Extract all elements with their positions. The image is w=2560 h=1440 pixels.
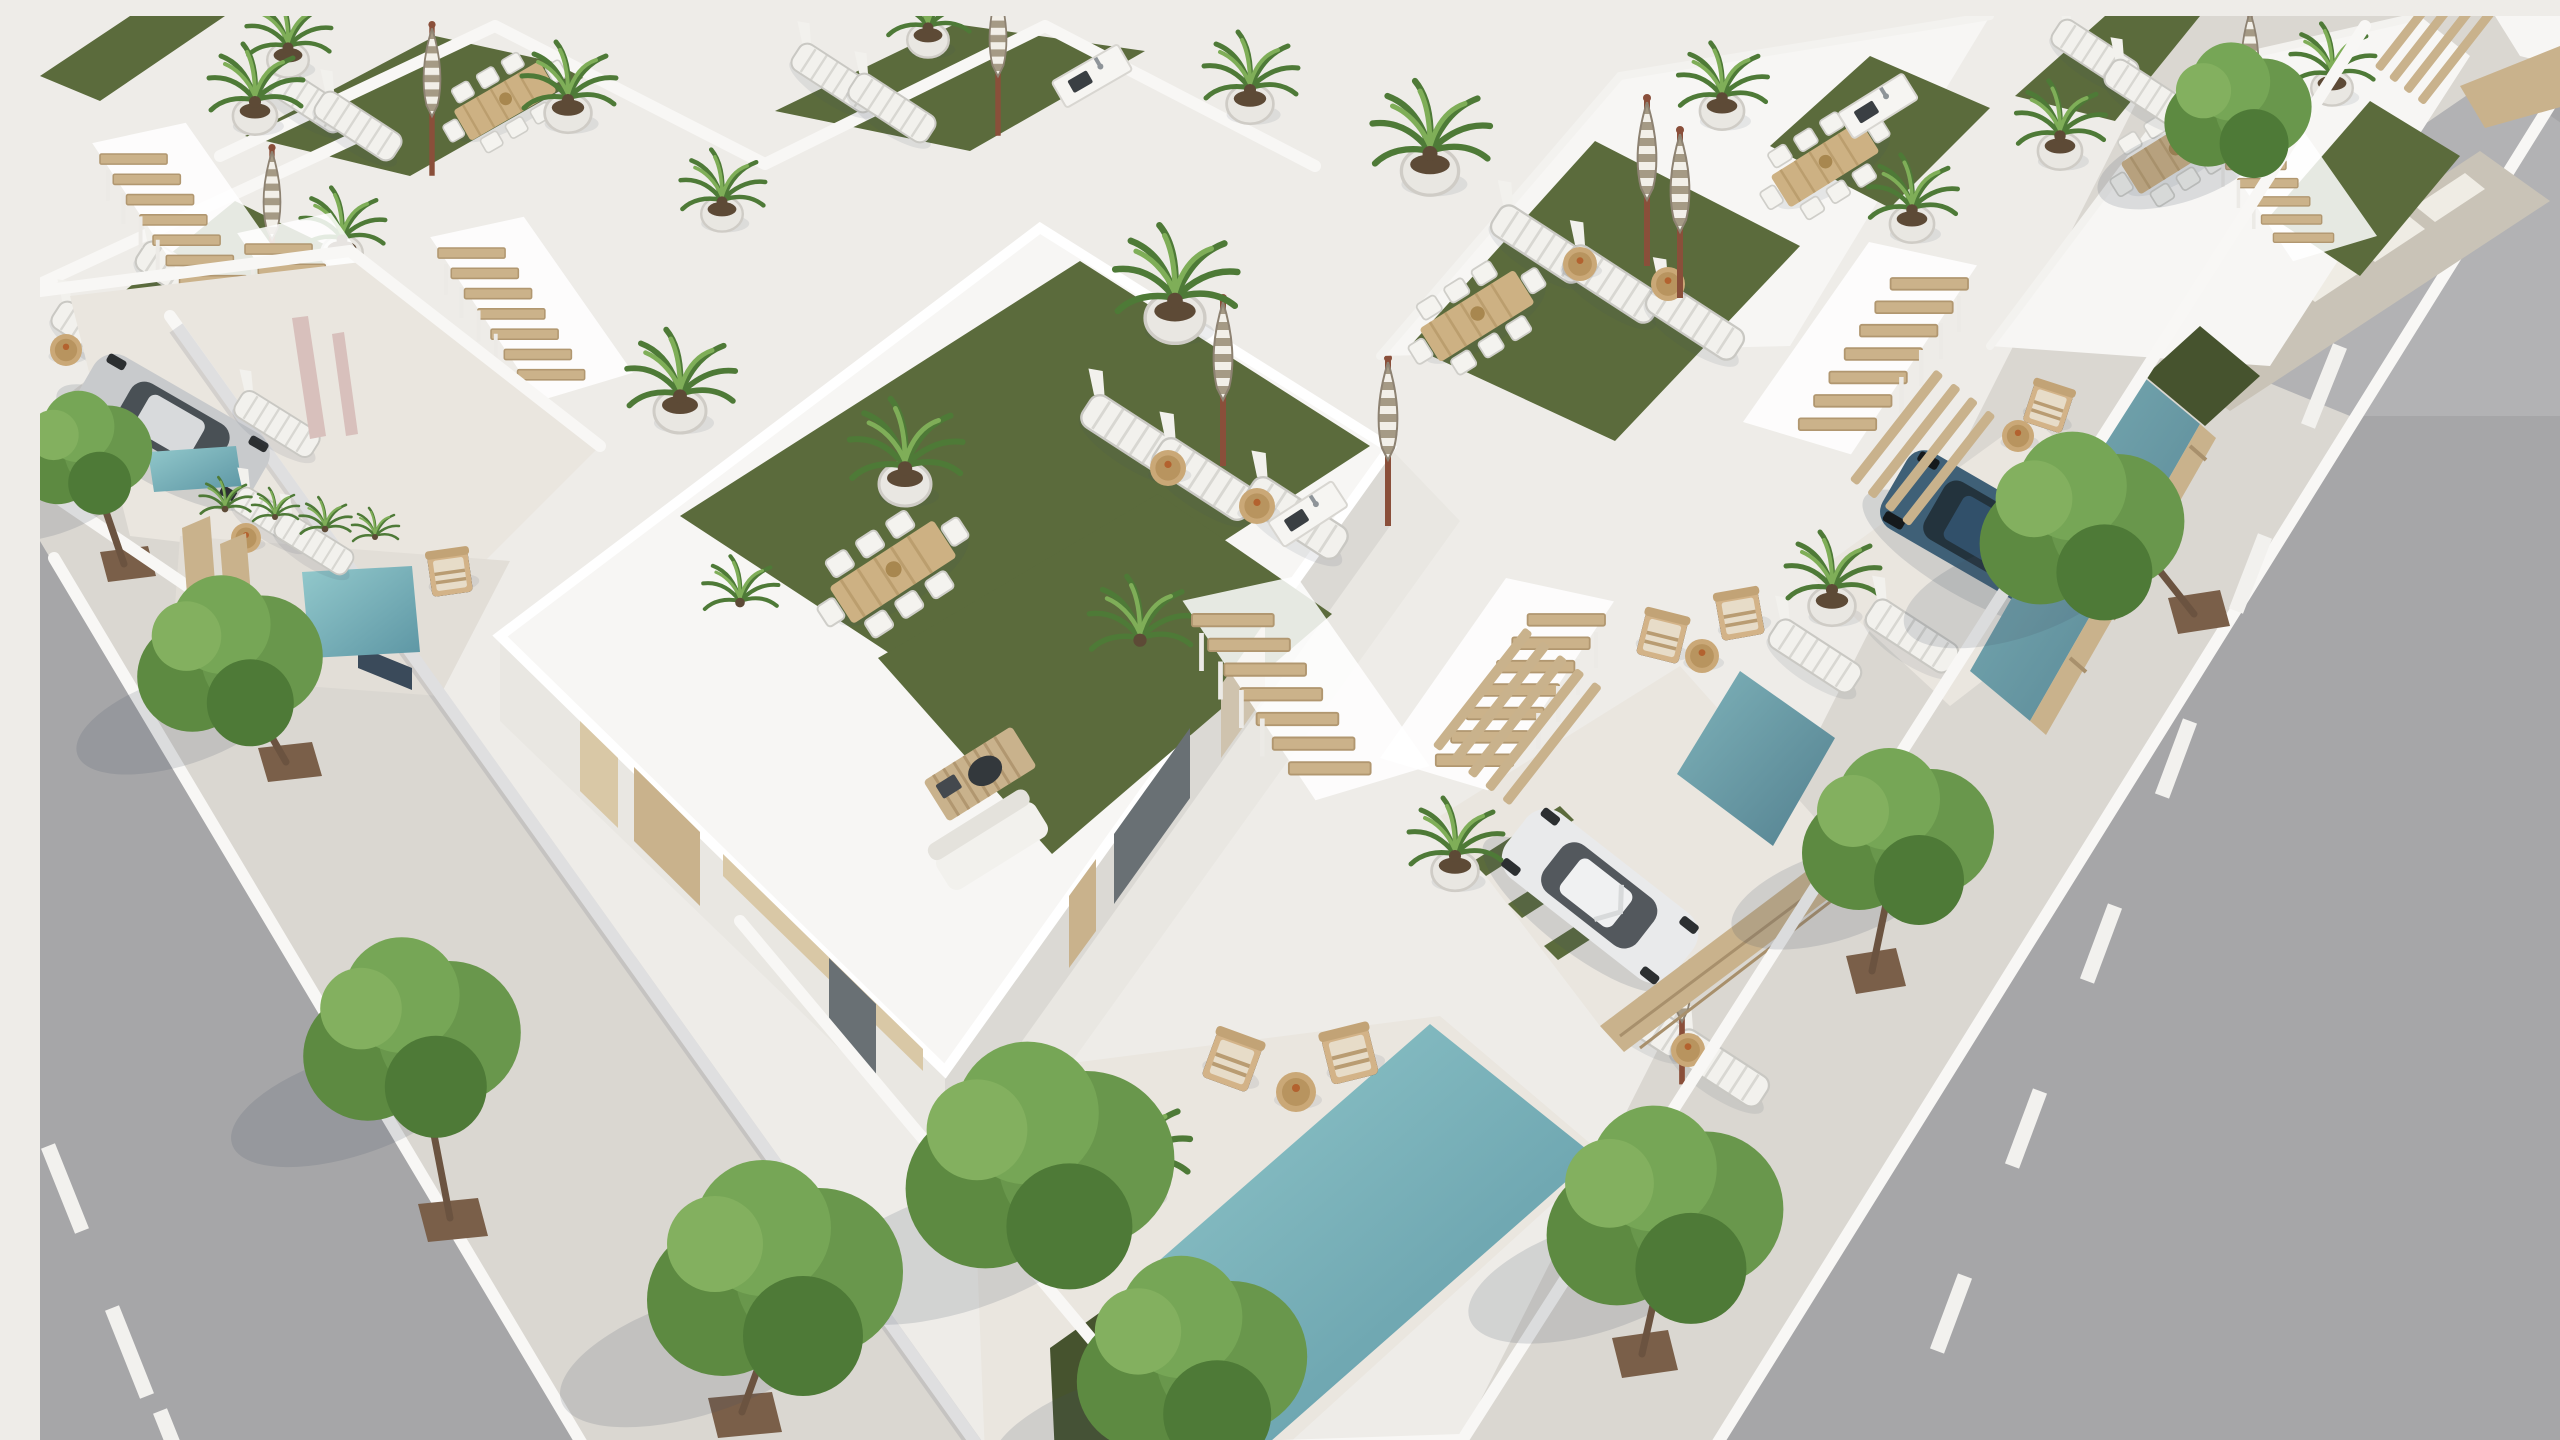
render-canvas	[40, 16, 2560, 1440]
left-villa-pool-small	[148, 446, 242, 492]
architectural-render: Aerial 3D architectural rendering of a n…	[40, 16, 2560, 1440]
